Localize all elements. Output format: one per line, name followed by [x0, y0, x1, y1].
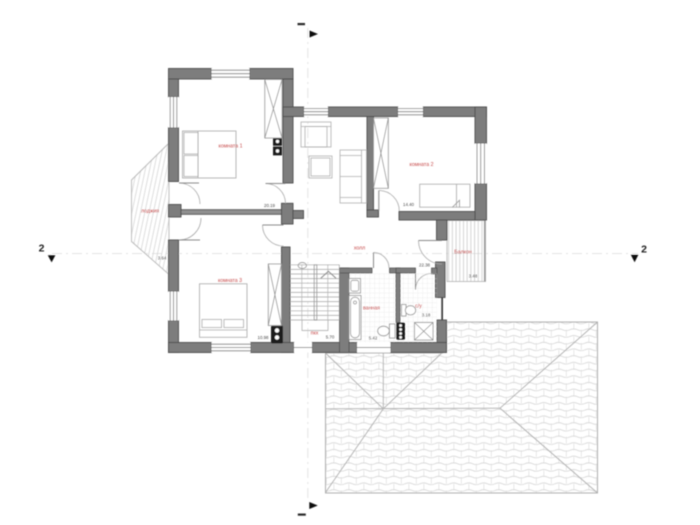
svg-text:2: 2: [39, 243, 45, 255]
svg-text:14.40: 14.40: [403, 202, 415, 207]
svg-text:3.18: 3.18: [422, 313, 431, 318]
svg-text:пкх: пкх: [311, 331, 319, 337]
svg-text:3.48: 3.48: [469, 274, 478, 279]
svg-text:комната 3: комната 3: [218, 278, 242, 284]
svg-text:5.42: 5.42: [369, 336, 378, 341]
svg-text:Балкон: Балкон: [454, 250, 472, 256]
svg-text:холл: холл: [354, 246, 365, 252]
svg-text:20.19: 20.19: [264, 203, 276, 208]
svg-text:с/у: с/у: [415, 304, 422, 310]
svg-text:3.64: 3.64: [158, 256, 167, 261]
svg-text:22.38: 22.38: [419, 263, 431, 268]
svg-text:лоджия: лоджия: [141, 209, 159, 215]
svg-text:5.70: 5.70: [326, 335, 335, 340]
svg-text:комната 1: комната 1: [219, 144, 243, 150]
svg-text:ванная: ванная: [363, 306, 380, 312]
svg-text:2: 2: [641, 244, 647, 256]
svg-text:комната 2: комната 2: [410, 162, 434, 168]
svg-text:10.98: 10.98: [258, 335, 270, 340]
